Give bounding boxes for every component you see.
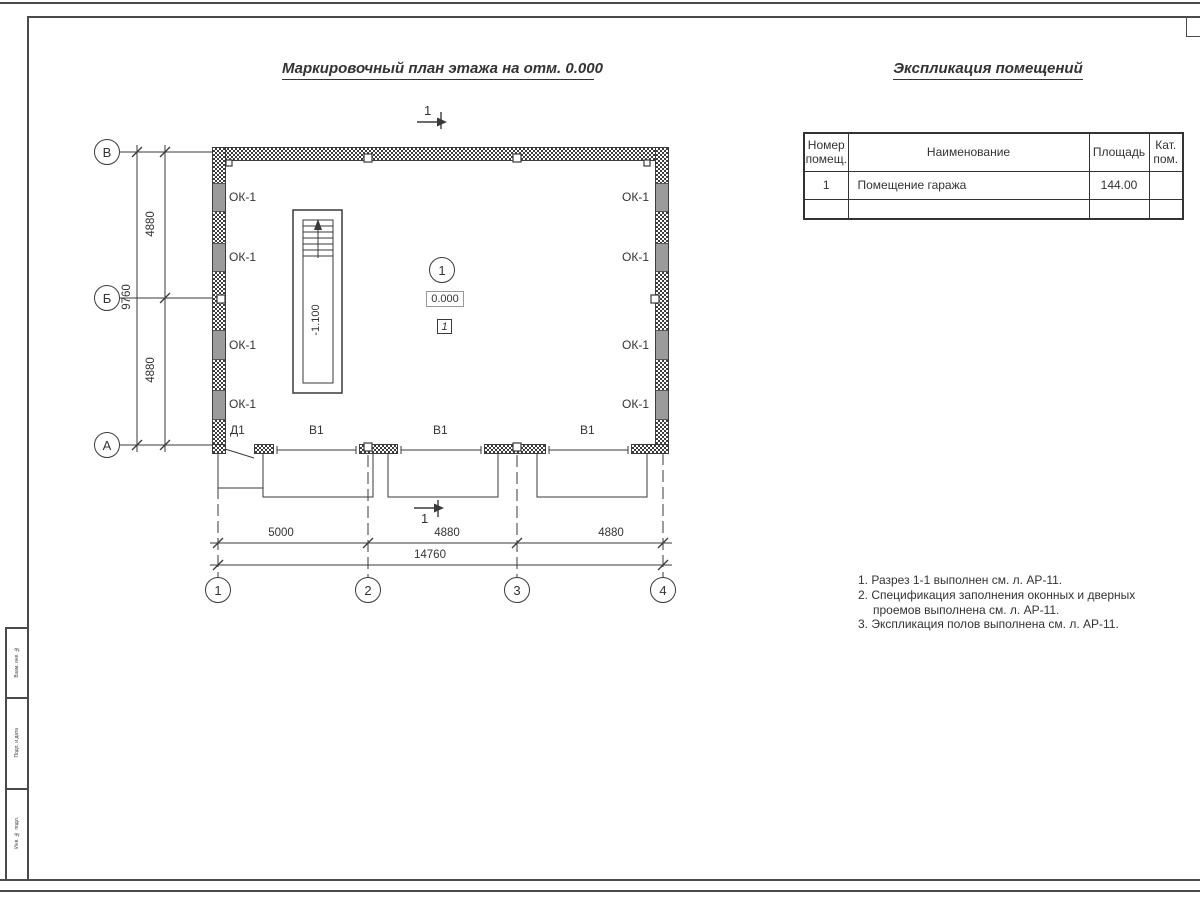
col-header-number: Номер помещ. (804, 133, 848, 171)
window-opening (213, 390, 225, 420)
cell-room-area: 144.00 (1089, 171, 1149, 199)
wall-bottom-pier (485, 445, 545, 453)
schedule-title: Экспликация помещений (893, 60, 1083, 80)
section-label-bottom: 1 (421, 511, 428, 526)
col-header-name: Наименование (848, 133, 1089, 171)
window-opening (656, 183, 668, 212)
dim-bottom-total-14760: 14760 (395, 549, 465, 561)
cell-room-number: 1 (804, 171, 848, 199)
wall-bottom-pier (360, 445, 397, 453)
gate-label: В1 (433, 423, 448, 437)
axis-col-4: 4 (650, 577, 676, 603)
cell-room-name: Помещение гаража (848, 171, 1089, 199)
window-label: ОК-1 (622, 250, 649, 264)
wall-bottom-pier (632, 445, 668, 453)
axis-col-2: 2 (355, 577, 381, 603)
drawing-notes: 1. Разрез 1-1 выполнен см. л. АР-11. 2. … (858, 573, 1135, 632)
attr-cell-inv: Инв. № подл. (6, 789, 27, 877)
window-opening (213, 330, 225, 360)
wall-right (656, 148, 668, 453)
gate-label: В1 (309, 423, 324, 437)
dim-left-4880-top: 4880 (145, 204, 157, 244)
axis-col-3: 3 (504, 577, 530, 603)
axis-row-Б: Б (94, 285, 120, 311)
window-opening (213, 243, 225, 272)
wall-top (213, 148, 668, 160)
window-label: ОК-1 (229, 190, 256, 204)
note-line: 2. Спецификация заполнения оконных и две… (858, 588, 1135, 603)
gate-label: В1 (580, 423, 595, 437)
window-opening (656, 330, 668, 360)
dim-bottom-4880-a: 4880 (417, 527, 477, 539)
wall-left (213, 148, 225, 453)
frame-bottom-line (0, 879, 1200, 881)
window-opening (213, 183, 225, 212)
room-number-circle: 1 (429, 257, 455, 283)
door-label: Д1 (230, 423, 245, 437)
window-label: ОК-1 (622, 338, 649, 352)
floor-type-mark: 1 (437, 319, 452, 334)
wall-bottom-pier (213, 445, 225, 453)
sheet-outer-bottom-line (0, 890, 1200, 892)
frame-left-line (27, 16, 29, 879)
table-row: 1 Помещение гаража 144.00 (804, 171, 1183, 199)
window-label: ОК-1 (229, 397, 256, 411)
dim-bottom-5000: 5000 (251, 527, 311, 539)
axis-row-B: В (94, 139, 120, 165)
window-label: ОК-1 (622, 397, 649, 411)
floor-elevation-mark: 0.000 (426, 291, 464, 307)
dim-left-total-9760: 9760 (121, 277, 133, 317)
sheet-number-box (1186, 16, 1200, 37)
window-opening (656, 243, 668, 272)
window-opening (656, 390, 668, 420)
table-row-empty (804, 199, 1183, 219)
wall-bottom-pier (255, 445, 273, 453)
pit-elevation-mark: -1.100 (310, 300, 324, 340)
window-label: ОК-1 (622, 190, 649, 204)
plan-title: Маркировочный план этажа на отм. 0.000 (282, 60, 594, 80)
dim-bottom-4880-b: 4880 (581, 527, 641, 539)
attr-cell-podp: Подп. и дата (6, 698, 27, 787)
window-label: ОК-1 (229, 338, 256, 352)
axis-col-1: 1 (205, 577, 231, 603)
sheet-outer-top-line (0, 2, 1200, 4)
note-line: проемов выполнена см. л. АР-11. (858, 603, 1135, 618)
drawing-sheet: Взам. инв. № Подп. и дата Инв. № подл. М… (0, 0, 1200, 900)
section-label-top: 1 (424, 103, 431, 118)
cell-room-cat (1149, 171, 1183, 199)
room-schedule-table: Номер помещ. Наименование Площадь Кат. п… (803, 132, 1184, 220)
col-header-area: Площадь (1089, 133, 1149, 171)
axis-row-А: А (94, 432, 120, 458)
note-line: 3. Экспликация полов выполнена см. л. АР… (858, 617, 1135, 632)
col-header-cat: Кат. пом. (1149, 133, 1183, 171)
frame-top-line (27, 16, 1200, 18)
attr-cell-vzam: Взам. инв. № (6, 628, 27, 696)
window-label: ОК-1 (229, 250, 256, 264)
dim-left-4880-bottom: 4880 (145, 350, 157, 390)
note-line: 1. Разрез 1-1 выполнен см. л. АР-11. (858, 573, 1135, 588)
